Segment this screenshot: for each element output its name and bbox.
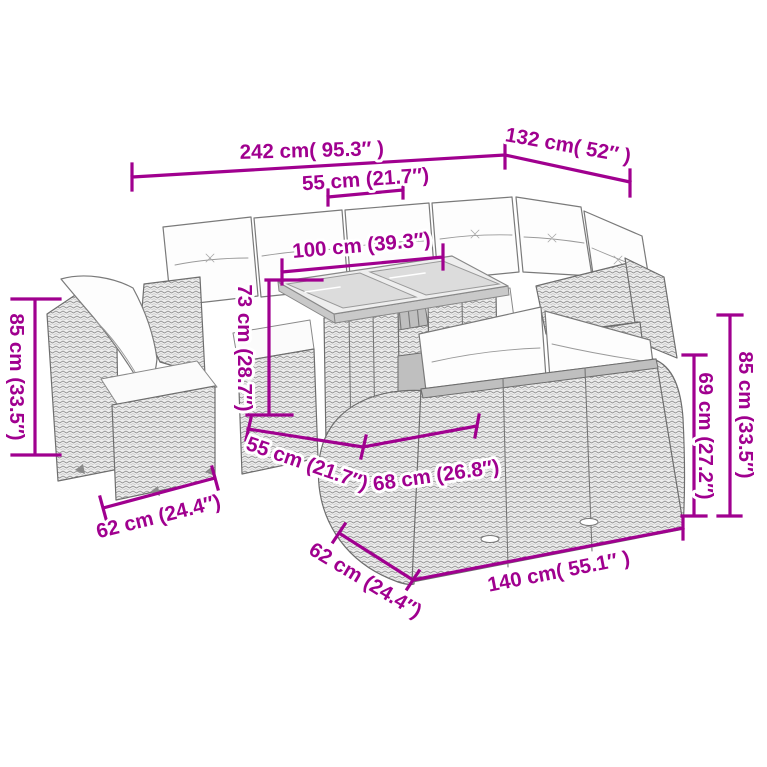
dim-label-85-left: 85 cm (33.5″) xyxy=(5,313,28,440)
dim-back-seat-width: 55 cm (21.7″) xyxy=(301,164,429,205)
sketch-canvas: 242 cm( 95.3″ ) 132 cm( 52″ ) 55 cm (21.… xyxy=(0,0,767,767)
sofa-foot-right xyxy=(580,519,598,526)
dim-label-85-right: 85 cm (33.5″) xyxy=(734,351,757,478)
dim-label-62-left: 62 cm (24.4″) xyxy=(94,490,223,543)
dim-label-132: 132 cm( 52″ ) xyxy=(503,123,632,168)
dim-sofa-arm-height: 69 cm (27.2″) xyxy=(682,355,717,516)
dim-label-242: 242 cm( 95.3″ ) xyxy=(239,137,384,164)
dim-label-69: 69 cm (27.2″) xyxy=(694,372,717,499)
sofa-foot-left xyxy=(481,536,499,543)
dim-label-55-top: 55 cm (21.7″) xyxy=(301,164,429,196)
dim-corner-right-width: 132 cm( 52″ ) xyxy=(503,123,632,196)
product-dimension-image: 242 cm( 95.3″ ) 132 cm( 52″ ) 55 cm (21.… xyxy=(0,0,767,767)
dim-label-73: 73 cm (28.7″) xyxy=(233,284,256,411)
dim-sofa-back-height: 85 cm (33.5″) xyxy=(718,315,757,516)
